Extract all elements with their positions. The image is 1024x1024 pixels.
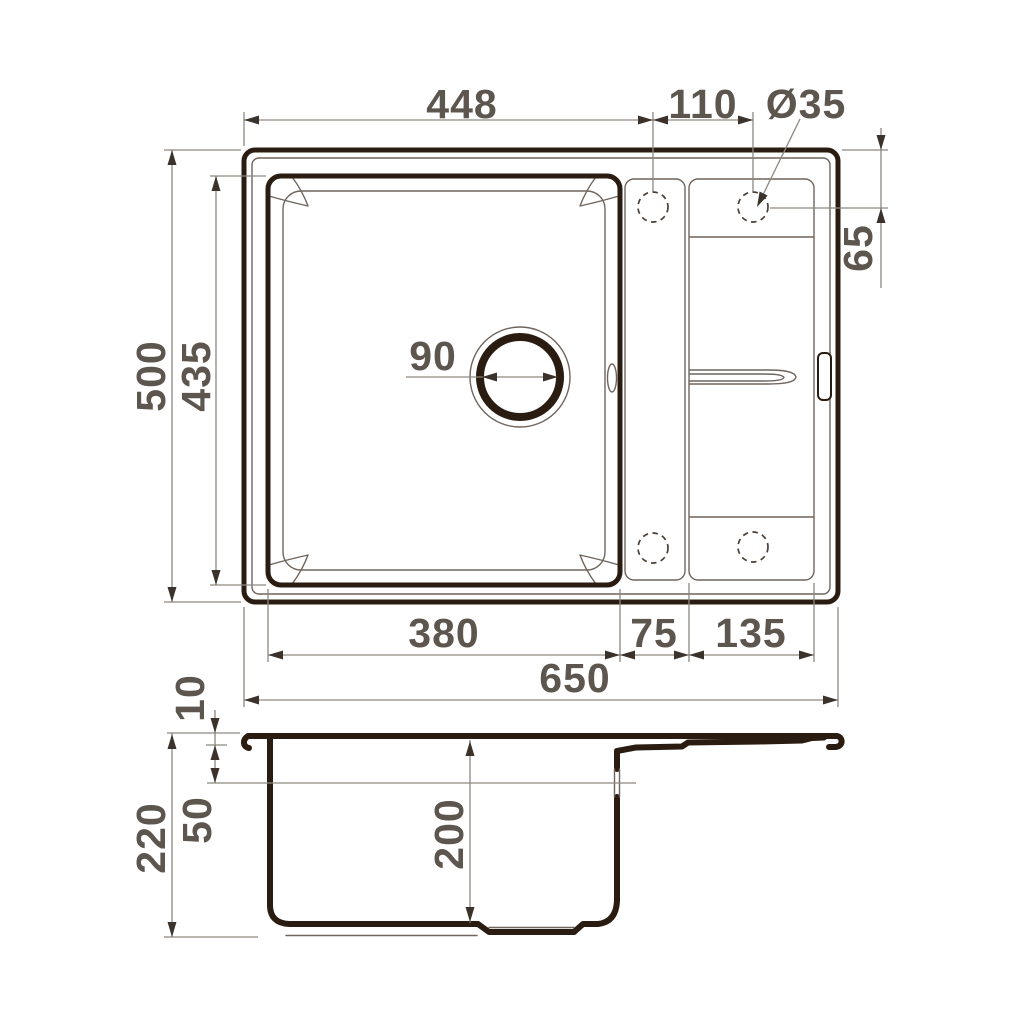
faucet-hole-bottom-left [638,533,668,563]
dim-label-200: 200 [426,798,472,869]
dim-110: 110 [653,81,753,127]
dim-hole-diameter: Ø35 [757,81,846,207]
dim-380-75-135: 380 75 135 [268,583,814,662]
dim-label-135: 135 [715,610,786,656]
drainboard-lines [690,237,813,517]
rim-slot [818,353,831,400]
dim-label-d35: Ø35 [766,81,847,127]
dim-label-75: 75 [630,610,678,656]
dim-10: 10 [167,674,240,783]
dim-label-110: 110 [668,81,737,127]
dim-label-435: 435 [173,340,219,411]
sink-dimension-diagram: 448 110 Ø35 500 435 [0,0,1024,1024]
dim-label-65: 65 [835,224,881,272]
drainboard-profile [617,738,824,770]
faucet-hole-top-left [638,192,668,222]
dim-200: 200 [426,740,475,923]
overflow-mark [608,364,617,392]
bowl-corner-chamfers [269,177,619,584]
sink-technical-drawing-page: 448 110 Ø35 500 435 [0,0,1024,1024]
dim-label-50: 50 [174,796,220,844]
bowl-edge [268,176,620,585]
dim-label-448: 448 [426,81,497,127]
dim-50: 50 [174,768,220,844]
faucet-hole-bottom-right [738,532,768,562]
dim-label-10: 10 [167,674,213,722]
faucet-strip [625,179,685,580]
dim-label-90: 90 [409,333,457,379]
sink-side-view [207,736,842,936]
dim-label-650: 650 [539,655,610,701]
drain-groove [690,370,796,384]
sink-top-view [244,150,838,602]
dim-label-380: 380 [408,610,479,656]
faucet-holes [638,192,768,563]
dimensions-side-view: 10 50 220 200 [128,674,475,937]
sink-outer-edge [244,150,838,602]
rim-inner-line [252,158,830,594]
dim-label-220: 220 [128,802,174,873]
dim-label-500: 500 [128,340,174,411]
